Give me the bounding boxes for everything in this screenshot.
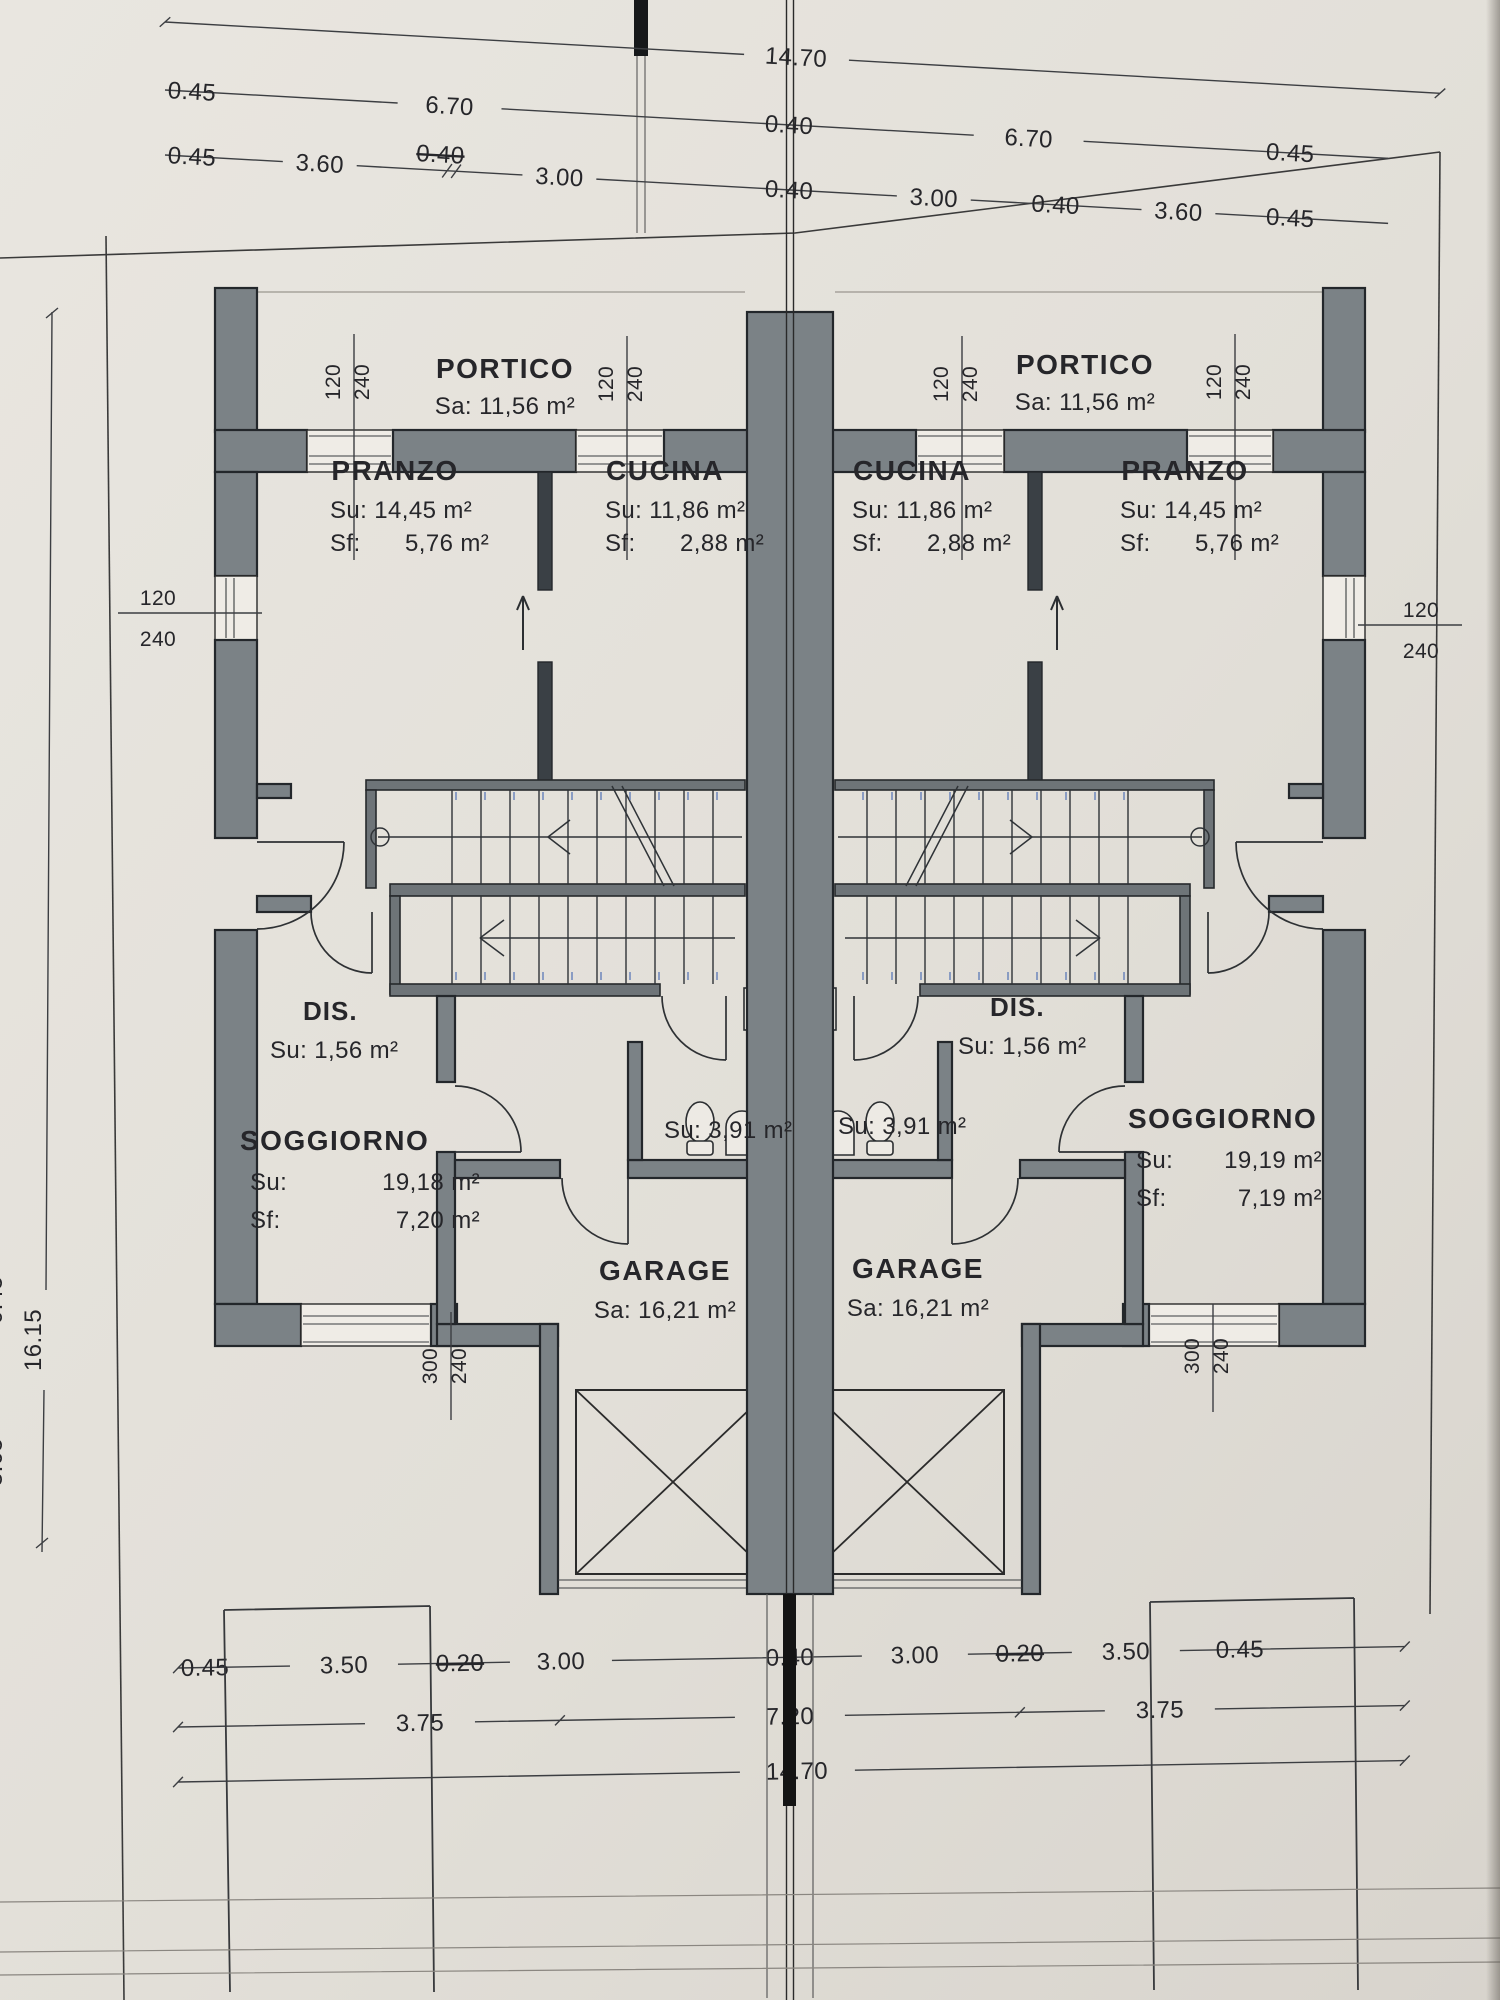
dim-edge-partial: 0.45 xyxy=(0,1276,8,1324)
room-portico-left: PORTICO xyxy=(436,353,574,384)
room-soggiorno-left: SOGGIORNO xyxy=(240,1125,429,1156)
soggiorno-right-su: 19,19 m² xyxy=(1224,1147,1322,1174)
room-dis-left-su: Su: 1,56 m² xyxy=(270,1037,398,1064)
room-pranzo-right: PRANZO xyxy=(1121,455,1248,486)
dim-label: 3.50 xyxy=(1101,1638,1150,1666)
soggiorno-right-sf-label: Sf: xyxy=(1136,1185,1167,1212)
dim-label: 3.75 xyxy=(1135,1696,1184,1724)
room-pranzo-right-sf-label: Sf: xyxy=(1120,530,1151,557)
room-cucina-left-su: Su: 11,86 m² xyxy=(605,497,745,524)
dim-label: 0.45 xyxy=(1265,204,1315,234)
room-pranzo-left-sf: 5,76 m² xyxy=(405,530,489,557)
room-cucina-right-sf-label: Sf: xyxy=(852,530,883,557)
window-size-label: 240 xyxy=(351,364,374,400)
room-portico-left-area: Sa: 11,56 m² xyxy=(435,393,575,420)
room-pranzo-left-su: Su: 14,45 m² xyxy=(330,497,472,524)
window-size-label: 120 xyxy=(595,366,618,402)
dim-label: 3.50 xyxy=(320,1652,369,1680)
room-bagno-left-su: Su: 3,91 m² xyxy=(664,1117,792,1144)
scan-fold-mark xyxy=(634,0,648,56)
room-pranzo-right-su: Su: 14,45 m² xyxy=(1120,497,1262,524)
window-size-label: 120 xyxy=(930,366,953,402)
window-size-label: 120 xyxy=(140,587,176,610)
window-size-label: 240 xyxy=(1210,1338,1233,1374)
dim-label: 3.00 xyxy=(909,184,959,214)
room-cucina-left-sf: 2,88 m² xyxy=(680,530,764,557)
dim-edge-partial: 3.65 xyxy=(0,1438,8,1486)
soggiorno-left-su-label: Su: xyxy=(250,1169,287,1196)
room-cucina-left-sf-label: Sf: xyxy=(605,530,636,557)
room-dis-right: DIS. xyxy=(990,992,1045,1022)
window-size-label: 120 xyxy=(1403,599,1439,622)
dim-side-height: 16.15 xyxy=(20,1309,47,1371)
wall-central xyxy=(747,312,833,1594)
dim-label: 0.40 xyxy=(1031,190,1081,220)
floor-plan-scan: 14.70 0.45 6.70 0.40 6.70 0.45 0.45 3.60… xyxy=(0,0,1500,2000)
dim-label-struck: 0.20 xyxy=(995,1640,1044,1668)
dim-label: 0.45 xyxy=(1265,139,1315,169)
room-pranzo-right-sf: 5,76 m² xyxy=(1195,530,1279,557)
dim-label: 0.45 xyxy=(167,77,217,107)
window-size-label: 120 xyxy=(1203,364,1226,400)
soggiorno-left-sf: 7,20 m² xyxy=(396,1207,480,1234)
window-size-label: 240 xyxy=(959,366,982,402)
room-pranzo-left: PRANZO xyxy=(331,455,458,486)
dim-top-total: 14.70 xyxy=(764,43,827,73)
dim-label: 0.45 xyxy=(181,1654,230,1682)
room-garage-left-area: Sa: 16,21 m² xyxy=(594,1297,736,1324)
window-size-label: 240 xyxy=(624,366,647,402)
soggiorno-right-su-label: Su: xyxy=(1136,1147,1173,1174)
dim-label: 0.40 xyxy=(764,111,814,141)
room-cucina-right-su: Su: 11,86 m² xyxy=(852,497,992,524)
room-pranzo-left-sf-label: Sf: xyxy=(330,530,361,557)
dim-label: 6.70 xyxy=(425,92,475,122)
room-garage-right-area: Sa: 16,21 m² xyxy=(847,1295,989,1322)
room-dis-left: DIS. xyxy=(303,996,358,1026)
dim-label: 3.60 xyxy=(295,149,345,179)
room-portico-right-area: Sa: 11,56 m² xyxy=(1015,389,1155,416)
dim-label: 6.70 xyxy=(1004,124,1054,154)
soggiorno-left-sf-label: Sf: xyxy=(250,1207,281,1234)
dim-label: 0.45 xyxy=(1215,1636,1264,1664)
room-cucina-left: CUCINA xyxy=(606,455,724,486)
window-size-label: 300 xyxy=(419,1348,442,1384)
window-size-label: 240 xyxy=(448,1348,471,1384)
soggiorno-left-su: 19,18 m² xyxy=(382,1169,480,1196)
window-size-label: 240 xyxy=(1232,364,1255,400)
scan-edge-shadow xyxy=(1486,0,1500,2000)
dim-label: 3.60 xyxy=(1154,197,1204,227)
room-cucina-right-sf: 2,88 m² xyxy=(927,530,1011,557)
room-soggiorno-right: SOGGIORNO xyxy=(1128,1103,1317,1134)
soggiorno-right-sf: 7,19 m² xyxy=(1238,1185,1322,1212)
dim-label: 3.00 xyxy=(891,1642,940,1670)
dim-bottom-total: 14.70 xyxy=(766,1758,829,1786)
dim-label: 0.40 xyxy=(764,176,814,206)
dim-label-struck: 0.40 xyxy=(416,140,466,170)
dim-label: 0.45 xyxy=(167,142,217,172)
room-garage-left: GARAGE xyxy=(599,1255,731,1286)
dim-label: 3.00 xyxy=(534,163,584,193)
room-bagno-right-su: Su: 3,91 m² xyxy=(838,1113,966,1140)
room-portico-right: PORTICO xyxy=(1016,349,1154,380)
window-size-label: 300 xyxy=(1181,1338,1204,1374)
dim-label-struck: 0.20 xyxy=(436,1650,485,1678)
room-cucina-right: CUCINA xyxy=(853,455,971,486)
room-garage-right: GARAGE xyxy=(852,1253,984,1284)
room-dis-right-su: Su: 1,56 m² xyxy=(958,1033,1086,1060)
dim-label: 3.00 xyxy=(537,1648,586,1676)
window-size-label: 120 xyxy=(322,364,345,400)
window-size-label: 240 xyxy=(1403,640,1439,663)
floor-plan-drawing: 14.70 0.45 6.70 0.40 6.70 0.45 0.45 3.60… xyxy=(0,0,1500,2000)
window-size-label: 240 xyxy=(140,628,176,651)
dim-label: 3.75 xyxy=(396,1709,445,1737)
